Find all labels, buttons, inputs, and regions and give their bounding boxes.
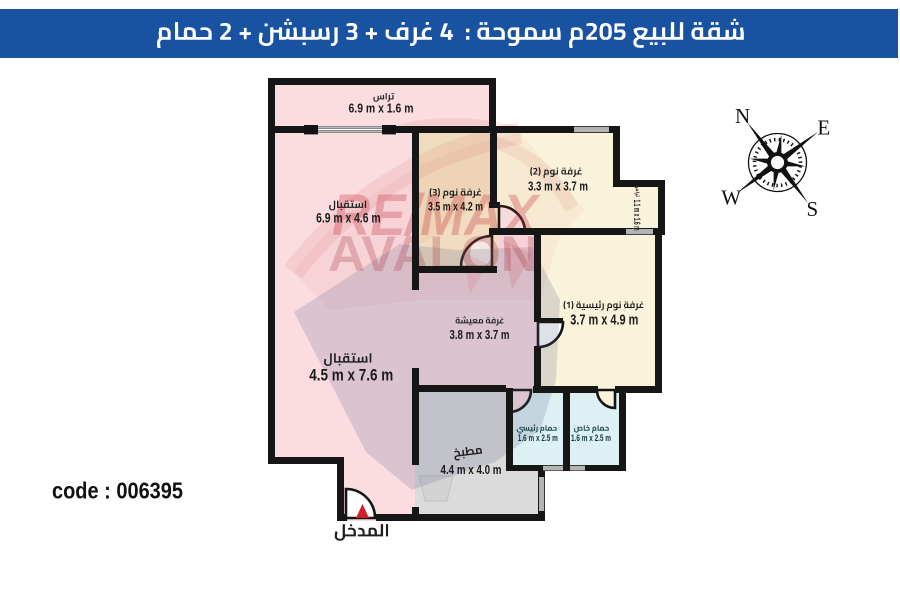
svg-text:6.9 m x 4.6 m: 6.9 m x 4.6 m — [316, 211, 381, 226]
svg-text:E: E — [817, 116, 830, 140]
svg-text:N: N — [735, 104, 750, 128]
svg-text:S: S — [807, 197, 819, 221]
svg-text:3.7 m x 4.9 m: 3.7 m x 4.9 m — [570, 313, 638, 329]
svg-text:4.4 m x 4.0 m: 4.4 m x 4.0 m — [441, 462, 502, 477]
svg-text:1.6 m x 2.5 m: 1.6 m x 2.5 m — [518, 433, 558, 444]
svg-text:1.1 m x 1.6 m: 1.1 m x 1.6 m — [632, 200, 642, 231]
svg-text:1.6 m x 2.5 m: 1.6 m x 2.5 m — [571, 433, 611, 444]
svg-text:4.5 m x 7.6 m: 4.5 m x 7.6 m — [309, 366, 393, 385]
svg-text:W: W — [721, 185, 741, 209]
svg-text:3.5 m x 4.2 m: 3.5 m x 4.2 m — [428, 200, 483, 214]
svg-text:3.8 m x 3.7 m: 3.8 m x 3.7 m — [450, 327, 510, 342]
svg-text:code : 006395: code : 006395 — [52, 478, 183, 504]
svg-text:3.3 m x 3.7 m: 3.3 m x 3.7 m — [528, 179, 588, 194]
svg-text:6.9 m x 1.6 m: 6.9 m x 1.6 m — [349, 102, 414, 116]
